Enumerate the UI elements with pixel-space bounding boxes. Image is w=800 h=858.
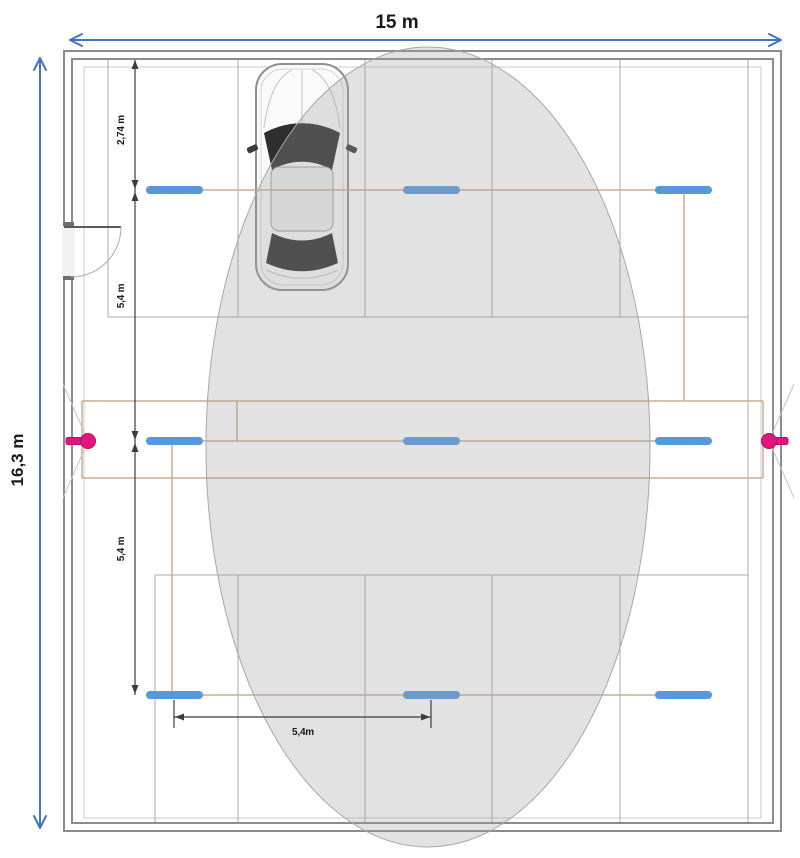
plan-canvas: 2,74 m 5,4 m 5,4 m 5,4m 15 m 16,3 m <box>0 0 800 858</box>
dimension-arrowhead <box>132 431 139 440</box>
dimension-arrowhead <box>132 192 139 201</box>
door-swing-arc <box>71 227 121 277</box>
luminaire-bar <box>146 691 203 699</box>
luminaire-bar <box>146 186 203 194</box>
sensor-stem <box>66 438 82 445</box>
dimension-arrowhead <box>132 180 139 189</box>
door-opening <box>62 226 75 278</box>
width-label: 15 m <box>375 12 418 33</box>
row-spacing-label-lower: 5,4 m <box>116 536 127 561</box>
presence-sensor-left <box>81 434 96 449</box>
dimension-arrowhead <box>132 60 139 69</box>
column-spacing-label: 5,4m <box>292 727 314 738</box>
dimension-arrowhead <box>132 443 139 452</box>
parking-lighting-plan: 2,74 m 5,4 m 5,4 m 5,4m 15 m 16,3 m <box>0 0 800 858</box>
presence-sensor-right <box>762 434 777 449</box>
offset-top-label: 2,74 m <box>116 115 127 145</box>
luminaire-bar <box>655 437 712 445</box>
row-spacing-label-upper: 5,4 m <box>116 283 127 308</box>
detection-zone-ellipse <box>206 47 650 847</box>
entrance-door <box>62 222 121 280</box>
luminaire-bar <box>146 437 203 445</box>
dimension-arrowhead <box>175 714 184 721</box>
height-label: 16,3 m <box>8 434 27 487</box>
dimension-arrowhead <box>132 685 139 694</box>
door-jamb <box>63 222 74 226</box>
luminaire-bar <box>655 691 712 699</box>
luminaire-bar <box>655 186 712 194</box>
